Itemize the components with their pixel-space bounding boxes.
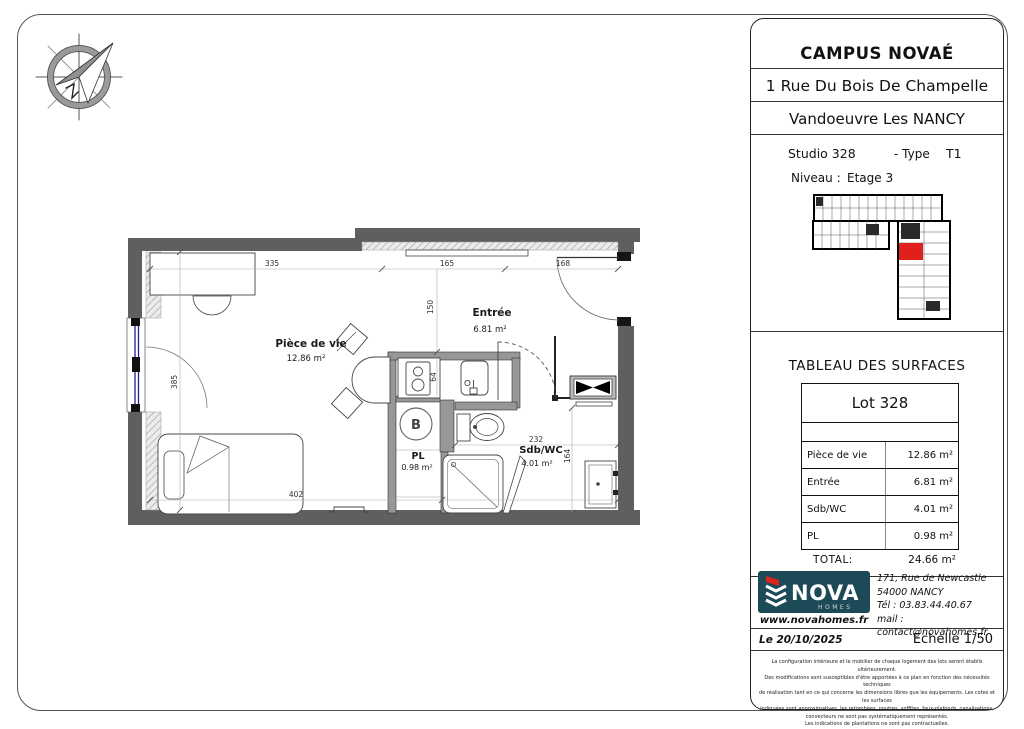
dim-150: 150 <box>426 300 435 315</box>
washbasin <box>461 361 488 395</box>
room-entree: Entrée <box>472 307 511 319</box>
row-value: 0.98 m² <box>886 531 958 542</box>
logo-brand-sub: HOMES <box>818 604 853 611</box>
row-label: PL <box>802 523 886 549</box>
unit-type-value: T1 <box>946 146 962 161</box>
logo-brand: NOVA <box>791 581 859 605</box>
disclaimer-line: Des modifications sont susceptibles d'êt… <box>756 675 998 691</box>
dim-165: 165 <box>440 259 455 268</box>
room-sdbwc-area: 4.01 m² <box>521 459 552 468</box>
boiler: B <box>400 408 432 440</box>
dim-64: 64 <box>429 372 438 382</box>
dim-164: 164 <box>563 449 572 464</box>
disclaimer-line: de réalisation tant en ce qui concerne l… <box>756 690 998 706</box>
technical-duct <box>570 376 616 406</box>
divider <box>751 650 1003 651</box>
divider <box>751 134 1003 135</box>
surface-table-title: TABLEAU DES SURFACES <box>751 358 1003 374</box>
room-sdbwc: Sdb/WC <box>519 445 563 456</box>
disclaimer-line: Les indications de plantations ne sont p… <box>756 721 998 729</box>
plan-scale: Echelle 1/50 <box>851 632 997 647</box>
unit-type-label: - Type <box>894 147 930 161</box>
lot-number: Lot 328 <box>802 384 958 423</box>
entry-closet-wall <box>555 336 572 398</box>
room-entree-area: 6.81 m² <box>473 325 506 335</box>
north-compass-icon <box>36 34 122 120</box>
divider <box>751 68 1003 69</box>
building-key-plan <box>806 193 954 325</box>
total-value: 24.66 m² <box>871 554 956 566</box>
divider <box>751 628 1003 629</box>
window <box>127 318 207 412</box>
disclaimer-line: indiquées sont approximatives, les retom… <box>756 706 998 714</box>
project-address-line1: 1 Rue Du Bois De Champelle <box>751 77 1003 95</box>
agency-phone: Tél : 03.83.44.40.67 <box>877 599 1003 613</box>
room-piece-de-vie-area: 12.86 m² <box>287 354 326 364</box>
table-row: Pièce de vie 12.86 m² <box>802 442 958 469</box>
row-label: Sdb/WC <box>802 496 886 522</box>
room-pl: PL <box>411 451 424 462</box>
agency-address-line1: 171, Rue de Newcastle <box>877 572 1003 586</box>
washing-machine <box>585 461 618 508</box>
dim-168: 168 <box>556 259 571 268</box>
bathroom-door <box>498 342 556 400</box>
plan-date: Le 20/10/2025 <box>759 634 843 646</box>
agency-contact: 171, Rue de Newcastle 54000 NANCY Tél : … <box>877 572 1003 640</box>
nova-homes-logo: NOVA HOMES <box>758 571 870 613</box>
wall-track <box>406 250 528 256</box>
surface-table: Lot 328 Pièce de vie 12.86 m² Entrée 6.8… <box>801 383 959 550</box>
empty-row <box>802 423 958 442</box>
dim-232: 232 <box>529 435 544 444</box>
divider <box>751 101 1003 102</box>
row-label: Entrée <box>802 469 886 495</box>
row-label: Pièce de vie <box>802 442 886 468</box>
agency-address-line2: 54000 NANCY <box>877 586 1003 600</box>
desk-chair <box>193 296 231 315</box>
project-title: CAMPUS NOVAÉ <box>751 44 1003 63</box>
dim-335: 335 <box>265 259 280 268</box>
table-row: Sdb/WC 4.01 m² <box>802 496 958 523</box>
title-block: CAMPUS NOVAÉ 1 Rue Du Bois De Champelle … <box>750 18 1004 710</box>
unit-studio: Studio 328 <box>788 146 856 161</box>
unit-level-value: Etage 3 <box>847 171 893 185</box>
legal-disclaimer: La configuration intérieure et le mobili… <box>756 659 998 729</box>
divider <box>751 331 1003 332</box>
highlighted-unit <box>899 243 923 260</box>
room-piece-de-vie: Pièce de vie <box>275 338 346 350</box>
dim-385: 385 <box>170 375 179 390</box>
desk <box>150 253 255 315</box>
row-value: 4.01 m² <box>886 504 958 515</box>
dim-402: 402 <box>289 490 304 499</box>
room-pl-area: 0.98 m² <box>401 463 432 472</box>
wall-end <box>552 395 558 401</box>
pillow <box>164 451 184 499</box>
table-row: PL 0.98 m² <box>802 523 958 549</box>
disclaimer-line: La configuration intérieure et le mobili… <box>756 659 998 675</box>
project-address-line2: Vandoeuvre Les NANCY <box>751 110 1003 128</box>
row-value: 6.81 m² <box>886 477 958 488</box>
shower <box>443 455 526 513</box>
boiler-label: B <box>411 418 421 433</box>
unit-level-label: Niveau : <box>791 171 841 185</box>
floor-plan-sheet: { "colors": { "wall": "#5f5f5f", "partit… <box>0 0 1024 724</box>
disclaimer-line: convecteurs ne sont pas systématiquement… <box>756 714 998 722</box>
table-row: Entrée 6.81 m² <box>802 469 958 496</box>
agency-website: www.novahomes.fr <box>758 615 870 626</box>
row-value: 12.86 m² <box>886 450 958 461</box>
total-label: TOTAL: <box>813 554 853 566</box>
toilet <box>457 414 504 442</box>
